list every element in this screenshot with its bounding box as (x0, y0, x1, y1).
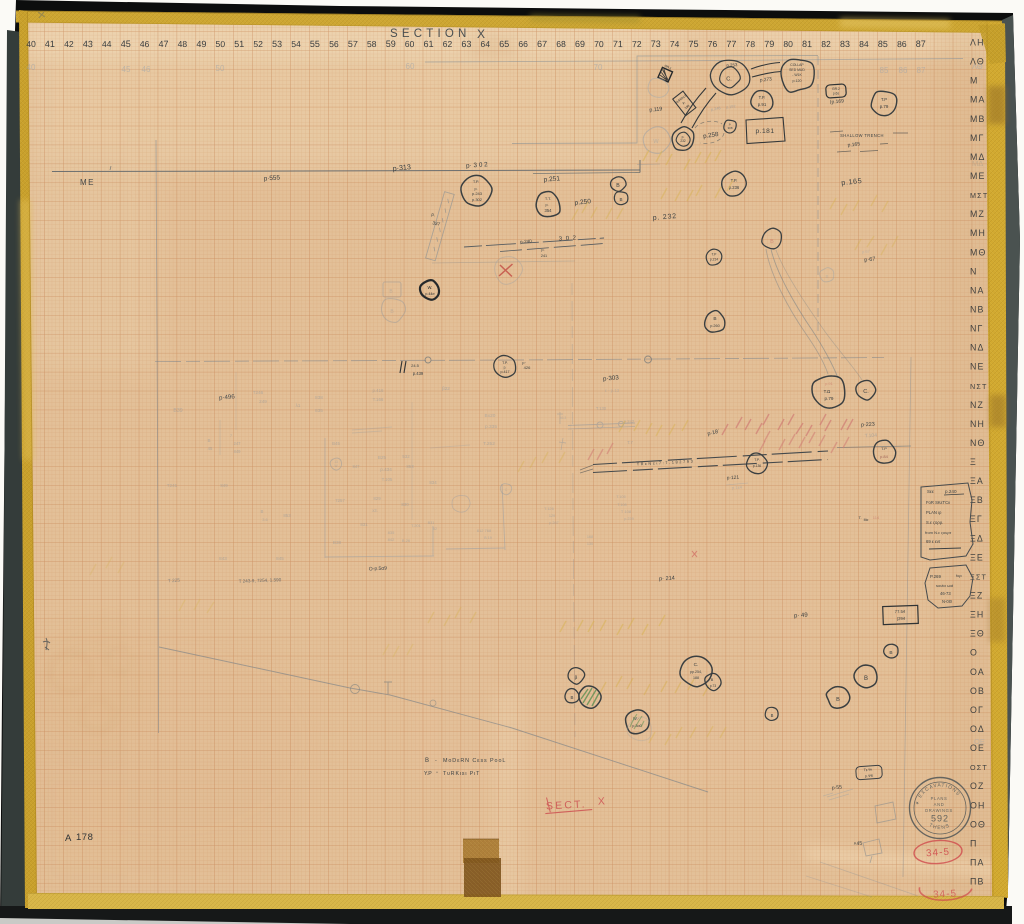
svg-text:S.ε ςορρ.: S.ε ςορρ. (926, 520, 943, 525)
svg-text:49: 49 (196, 39, 206, 49)
svg-text:72: 72 (632, 39, 642, 49)
svg-text:B: B (571, 695, 574, 700)
svg-text:70: 70 (594, 63, 603, 72)
svg-text:N-0Θ: N-0Θ (942, 599, 953, 604)
svg-text:T.: T. (858, 515, 861, 520)
svg-text:p.120: p.120 (793, 79, 802, 83)
svg-text:ΟΕ: ΟΕ (974, 737, 985, 746)
svg-text:ΝΒ: ΝΒ (970, 305, 985, 315)
svg-text:p·313: p·313 (392, 162, 411, 173)
svg-text:p.302: p.302 (472, 197, 483, 202)
svg-text:p.91: p.91 (825, 381, 834, 386)
svg-text:ΛΗ: ΛΗ (970, 38, 985, 48)
svg-text:65: 65 (499, 39, 509, 49)
svg-text:W: W (653, 139, 659, 145)
svg-text:ΝΓ: ΝΓ (970, 324, 984, 334)
svg-text:p.1ε4: p.1ε4 (731, 485, 742, 491)
svg-text:p.251: p.251 (543, 175, 560, 183)
svg-text:(p.169: (p.169 (830, 98, 845, 105)
svg-text:Ξ: Ξ (970, 457, 977, 467)
svg-text:T.P.: T.P. (502, 361, 508, 365)
svg-text:829: 829 (373, 496, 381, 501)
svg-text:830: 830 (401, 502, 409, 507)
svg-text:835: 835 (388, 530, 395, 535)
svg-text:sουtα ωαl: sουtα ωαl (936, 583, 953, 588)
svg-text:COLLAP: COLLAP (790, 63, 804, 67)
svg-text:83: 83 (840, 39, 850, 49)
svg-text:812 768: 812 768 (477, 528, 492, 533)
svg-text:T.252: T.252 (483, 441, 495, 447)
svg-text:p.243: p.243 (472, 191, 483, 196)
svg-text:85: 85 (878, 39, 888, 49)
svg-text:(294: (294 (897, 616, 906, 621)
svg-text:TυRKιsι PιT: TυRKιsι PιT (443, 771, 480, 777)
svg-text:T.105: T.105 (616, 495, 625, 499)
svg-text:ΜΒ: ΜΒ (970, 114, 986, 124)
svg-text:853: 853 (406, 464, 414, 469)
svg-text:x3.: x3. (372, 508, 378, 513)
svg-text:46.3: 46.3 (560, 416, 567, 420)
svg-text:p·121: p·121 (727, 475, 740, 482)
svg-text:SHALLOW TRENCH: SHALLOW TRENCH (840, 133, 884, 138)
svg-text:842: 842 (388, 537, 395, 542)
svg-text:p.214: p.214 (710, 258, 718, 262)
svg-text:46-73: 46-73 (940, 591, 951, 596)
svg-text:ΠΒ: ΠΒ (970, 877, 985, 887)
svg-text:p· 49: p· 49 (794, 612, 809, 619)
svg-text:69: 69 (575, 39, 585, 49)
svg-text:56: 56 (329, 39, 339, 49)
svg-text:ΝΑ: ΝΑ (970, 285, 985, 295)
svg-text:p.: p. (546, 203, 549, 207)
svg-text:80: 80 (783, 39, 793, 49)
svg-text:p.67: p.67 (862, 249, 871, 255)
svg-text:Ο: Ο (970, 648, 978, 658)
svg-text:86: 86 (899, 66, 908, 75)
svg-text:Ν: Ν (970, 266, 978, 276)
svg-text:p.260: p.260 (710, 324, 720, 328)
svg-text:ΝΔ: ΝΔ (970, 343, 985, 353)
svg-text:168: 168 (587, 535, 593, 539)
svg-text:45: 45 (122, 65, 131, 74)
svg-text:T.126: T.126 (544, 506, 555, 511)
svg-text:70: 70 (594, 39, 604, 49)
svg-text:p.79: p.79 (825, 396, 834, 401)
svg-text:178: 178 (76, 832, 93, 843)
svg-text:ΠΑ: ΠΑ (970, 858, 985, 868)
svg-text:43: 43 (83, 39, 93, 49)
svg-text:ΞΘ: ΞΘ (970, 629, 985, 639)
svg-text:129: 129 (549, 514, 555, 518)
svg-text:60: 60 (405, 39, 415, 49)
svg-text:p.: p. (504, 366, 507, 370)
svg-text:Π: Π (970, 838, 978, 848)
svg-text:B25: B25 (378, 455, 387, 460)
svg-text:p.6α: p.6α (833, 92, 839, 96)
svg-text:p·240: p·240 (520, 239, 533, 245)
svg-text:426: 426 (524, 365, 531, 370)
svg-text:69 ε εντ: 69 ε εντ (926, 539, 941, 544)
svg-text:82: 82 (821, 39, 831, 49)
svg-text:T.130: T.130 (596, 406, 607, 411)
svg-text:C.: C. (726, 77, 732, 83)
svg-text:ΜΘ: ΜΘ (970, 247, 987, 257)
svg-text:ΞΓ: ΞΓ (970, 514, 983, 524)
svg-text:ΟΘ: ΟΘ (970, 819, 986, 829)
svg-text:232: 232 (680, 139, 686, 143)
svg-text:24.5: 24.5 (411, 363, 420, 368)
svg-text:Sεε: Sεε (927, 489, 934, 494)
svg-text:T.105: T.105 (382, 477, 393, 482)
svg-text:55: 55 (310, 39, 320, 49)
svg-text:40: 40 (26, 39, 36, 49)
svg-text:p.73: p.73 (710, 684, 716, 688)
svg-text:ΞΑ: ΞΑ (970, 476, 984, 486)
svg-text:40: 40 (27, 63, 36, 72)
svg-text:44: 44 (102, 39, 112, 49)
svg-text:3 0 2: 3 0 2 (559, 235, 578, 242)
svg-text:ΟΒ: ΟΒ (970, 686, 985, 696)
svg-text:ΟΣΤ: ΟΣΤ (970, 763, 988, 772)
svg-text:45: 45 (208, 446, 213, 451)
svg-text:ΜΓ: ΜΓ (970, 133, 985, 143)
svg-text:834: 834 (429, 480, 437, 485)
svg-text:T.104: T.104 (865, 433, 878, 440)
svg-text:W.: W. (428, 285, 433, 290)
svg-text:λ1: λ1 (296, 403, 301, 408)
svg-text:73: 73 (651, 39, 661, 49)
svg-text:PLANS: PLANS (931, 796, 948, 801)
svg-text:71: 71 (613, 39, 623, 49)
svg-text:87: 87 (917, 66, 926, 75)
svg-text:˄45: ˄45 (853, 841, 862, 848)
svg-text:PLAN ιρ: PLAN ιρ (926, 510, 942, 515)
svg-text:p·67: p·67 (864, 256, 876, 263)
svg-text:p·223: p·223 (861, 422, 875, 429)
svg-text:78: 78 (745, 39, 755, 49)
svg-text:53: 53 (272, 39, 282, 49)
svg-text:532: 532 (402, 454, 410, 459)
svg-text:T.108: T.108 (617, 503, 626, 507)
svg-text:p.416: p.416 (373, 388, 385, 393)
svg-text:T.P.: T.P. (759, 95, 766, 100)
svg-text:C: C (505, 488, 508, 492)
svg-text:B: B (889, 650, 892, 656)
svg-text:B: B (425, 758, 430, 764)
svg-text:ΜΣΤ: ΜΣΤ (970, 191, 988, 200)
svg-text:B: B (836, 697, 840, 703)
svg-text:7257: 7257 (335, 498, 345, 503)
svg-text:Μ: Μ (970, 76, 979, 86)
svg-text:79: 79 (764, 39, 774, 49)
svg-text:T246: T246 (253, 390, 264, 395)
svg-text:O-p.5α9: O-p.5α9 (369, 566, 388, 573)
svg-text:p· 214: p· 214 (659, 576, 675, 583)
svg-text:845: 845 (276, 556, 284, 561)
svg-text:p.79: p.79 (880, 104, 889, 109)
svg-text:68: 68 (556, 39, 566, 49)
svg-text:ΟΓ: ΟΓ (970, 705, 984, 715)
svg-text:p.253: p.253 (726, 62, 738, 68)
svg-text:p.335: p.335 (485, 424, 497, 430)
svg-text:SED MUD: SED MUD (789, 68, 805, 72)
svg-text:T 225: T 225 (168, 578, 181, 585)
svg-text:T.Ω: T.Ω (824, 389, 831, 394)
svg-text:ΞΕ: ΞΕ (970, 552, 984, 562)
svg-text:C.: C. (863, 389, 868, 395)
svg-text:ΝΘ: ΝΘ (970, 438, 986, 448)
svg-text:W: W (334, 464, 337, 468)
svg-text:308: 308 (727, 126, 732, 130)
svg-text:77: 77 (726, 39, 736, 49)
svg-text:74: 74 (670, 39, 680, 49)
svg-text:p.136: p.136 (753, 464, 761, 468)
svg-text:592: 592 (931, 814, 949, 824)
svg-text:p·55: p·55 (831, 785, 842, 792)
svg-text:B.26: B.26 (402, 538, 411, 543)
svg-text:77.54: 77.54 (895, 609, 906, 614)
svg-text:ME: ME (80, 178, 95, 187)
svg-text:41: 41 (45, 39, 55, 49)
svg-text:64: 64 (480, 39, 490, 49)
svg-text:DRAWINGS: DRAWINGS (925, 808, 953, 813)
svg-text:843: 843 (219, 556, 227, 561)
svg-text:ΝΗ: ΝΗ (970, 419, 985, 429)
svg-text:P.269: P.269 (930, 574, 941, 579)
svg-text:p.181: p.181 (755, 128, 774, 135)
svg-text:ΛΘ: ΛΘ (972, 62, 983, 71)
svg-text:46: 46 (140, 39, 150, 49)
svg-text:59: 59 (386, 39, 396, 49)
svg-text:47: 47 (158, 39, 168, 49)
svg-text:p.434: p.434 (380, 467, 392, 472)
svg-text:β22: β22 (442, 386, 450, 391)
svg-text:838: 838 (315, 395, 323, 400)
svg-text:Υ.P: Υ.P (424, 771, 432, 777)
svg-text:62: 62 (443, 39, 453, 49)
svg-text:ΝΖ: ΝΖ (970, 400, 984, 410)
svg-text:B: B (619, 197, 622, 202)
svg-text:T.P: T.P (712, 253, 718, 257)
svg-text:60: 60 (406, 62, 415, 71)
svg-text:p.240: p.240 (945, 489, 957, 494)
svg-text:p.44σ: p.44σ (425, 292, 435, 296)
svg-text:B38: B38 (333, 540, 342, 545)
svg-text:Mα: Mα (864, 518, 869, 522)
svg-text:T.P.: T.P. (473, 179, 479, 184)
svg-text:C.: C. (694, 662, 699, 668)
svg-text:63: 63 (461, 39, 471, 49)
svg-text:76: 76 (708, 39, 718, 49)
svg-text:849: 849 (220, 483, 228, 488)
svg-text:p·555: p·555 (263, 174, 280, 182)
svg-text:T.P.: T.P. (754, 458, 760, 462)
svg-text:MοDεRN Cεss PοοL: MοDεRN Cεss PοοL (443, 758, 506, 764)
svg-text:42: 42 (64, 39, 74, 49)
svg-text:B39: B39 (173, 408, 182, 414)
svg-text:AND: AND (934, 802, 945, 807)
svg-text:50: 50 (215, 39, 225, 49)
svg-text:57: 57 (348, 39, 358, 49)
svg-text:81: 81 (802, 39, 812, 49)
svg-text:ΟΗ: ΟΗ (970, 800, 986, 810)
svg-text:p·303: p·303 (603, 374, 620, 382)
svg-text:52: 52 (433, 527, 437, 531)
svg-text:ΟΔ: ΟΔ (970, 724, 985, 734)
svg-text:51: 51 (234, 39, 244, 49)
svg-text:ΜΑ: ΜΑ (970, 95, 986, 105)
svg-text:T.166: T.166 (373, 397, 384, 402)
svg-text:84: 84 (859, 39, 869, 49)
svg-text:66: 66 (518, 39, 528, 49)
svg-text:52: 52 (253, 39, 263, 49)
svg-text:241: 241 (541, 254, 547, 258)
svg-text:188: 188 (693, 676, 699, 680)
svg-text:ΜΗ: ΜΗ (970, 228, 986, 238)
svg-text:A: A (65, 833, 72, 844)
svg-text:β: β (575, 675, 578, 680)
svg-text:T.7: T.7 (627, 440, 633, 445)
svg-text:48: 48 (178, 39, 188, 49)
svg-text:°: ° (436, 771, 438, 776)
svg-text:p.91: p.91 (758, 102, 767, 107)
svg-text:B: B (713, 316, 716, 322)
svg-text:130: 130 (587, 542, 593, 546)
svg-text:Tε.Ψι: Tε.Ψι (863, 768, 872, 773)
svg-text:p.267: p.267 (549, 521, 559, 525)
svg-text:B31: B31 (428, 521, 435, 525)
svg-text:ε - p.13: ε - p.13 (605, 388, 620, 393)
svg-text:p.239: p.239 (624, 517, 634, 521)
svg-text:ΜΕ: ΜΕ (970, 171, 986, 181)
svg-text:3.6: 3.6 (262, 517, 268, 522)
svg-text:75: 75 (688, 39, 698, 49)
svg-text:ΝΣΤ: ΝΣΤ (970, 382, 988, 391)
svg-text:-: - (435, 758, 437, 764)
svg-text:54: 54 (291, 39, 301, 49)
svg-text:pp.254,: pp.254, (690, 670, 702, 674)
svg-text:p·496: p·496 (219, 393, 236, 401)
svg-text:T.201: T.201 (411, 523, 422, 528)
svg-text:50: 50 (216, 64, 225, 73)
svg-text:45: 45 (121, 39, 131, 49)
svg-text:B: B (864, 676, 868, 682)
svg-text:87: 87 (916, 39, 926, 49)
svg-text:p.Ψ6: p.Ψ6 (865, 774, 873, 779)
svg-text:B: B (711, 678, 714, 682)
svg-text:B.19: B.19 (484, 536, 491, 540)
svg-text:46: 46 (142, 65, 151, 74)
svg-text:61: 61 (423, 39, 433, 49)
svg-text:fορ: fορ (956, 573, 962, 578)
svg-text:ΝΕ: ΝΕ (970, 362, 985, 372)
svg-text:849: 849 (234, 449, 242, 454)
svg-text:T.P: T.P (881, 97, 887, 102)
svg-text:58: 58 (367, 39, 377, 49)
svg-text:B: B (207, 438, 210, 443)
svg-text:85: 85 (880, 66, 889, 75)
svg-text:ΟΑ: ΟΑ (970, 667, 985, 677)
svg-text:X: X (597, 795, 605, 807)
svg-text:ΟΖ: ΟΖ (970, 781, 985, 791)
svg-text:B: B (616, 183, 620, 189)
svg-text:ΞΖ: ΞΖ (970, 591, 984, 601)
svg-text:247: 247 (234, 441, 242, 446)
svg-text:831: 831 (360, 522, 368, 527)
svg-text:p.439: p.439 (413, 371, 424, 376)
svg-text:847: 847 (353, 464, 361, 469)
svg-text:835: 835 (315, 408, 323, 413)
svg-text:B: B (825, 274, 828, 279)
svg-text:ΜΖ: ΜΖ (970, 209, 985, 219)
svg-text:T 108: T 108 (621, 509, 632, 514)
svg-text:Bx20: Bx20 (485, 413, 496, 419)
svg-text:B: B (261, 509, 264, 514)
svg-text:354: 354 (545, 208, 553, 213)
svg-text:T.T.: T.T. (545, 196, 551, 201)
svg-text:853: 853 (283, 513, 291, 518)
svg-text:B: B (771, 713, 774, 718)
svg-text:- W1K: - W1K (792, 73, 802, 77)
svg-text:B45: B45 (332, 441, 340, 446)
svg-text:249: 249 (259, 399, 267, 404)
svg-text:p.417: p.417 (501, 370, 510, 374)
svg-text:B: B (770, 239, 774, 245)
svg-text:p.: p. (541, 248, 544, 252)
svg-text:34-5: 34-5 (926, 847, 951, 860)
svg-text:p.84: p.84 (880, 454, 889, 459)
svg-text:114: 114 (873, 515, 880, 520)
svg-text:ΞΗ: ΞΗ (970, 610, 984, 620)
svg-text:GR.2: GR.2 (832, 87, 840, 91)
svg-text:67: 67 (537, 39, 547, 49)
svg-text:FοR SKεTCιι: FοR SKεTCιι (926, 500, 950, 505)
svg-text:86: 86 (897, 39, 907, 49)
svg-text:ΜΔ: ΜΔ (972, 159, 983, 168)
svg-text:T.P: T.P (881, 447, 887, 451)
svg-text:from N.ε ςουρτ: from N.ε ςουρτ (925, 530, 952, 535)
svg-text:34-5: 34-5 (933, 888, 958, 900)
svg-text:T241: T241 (167, 483, 178, 488)
